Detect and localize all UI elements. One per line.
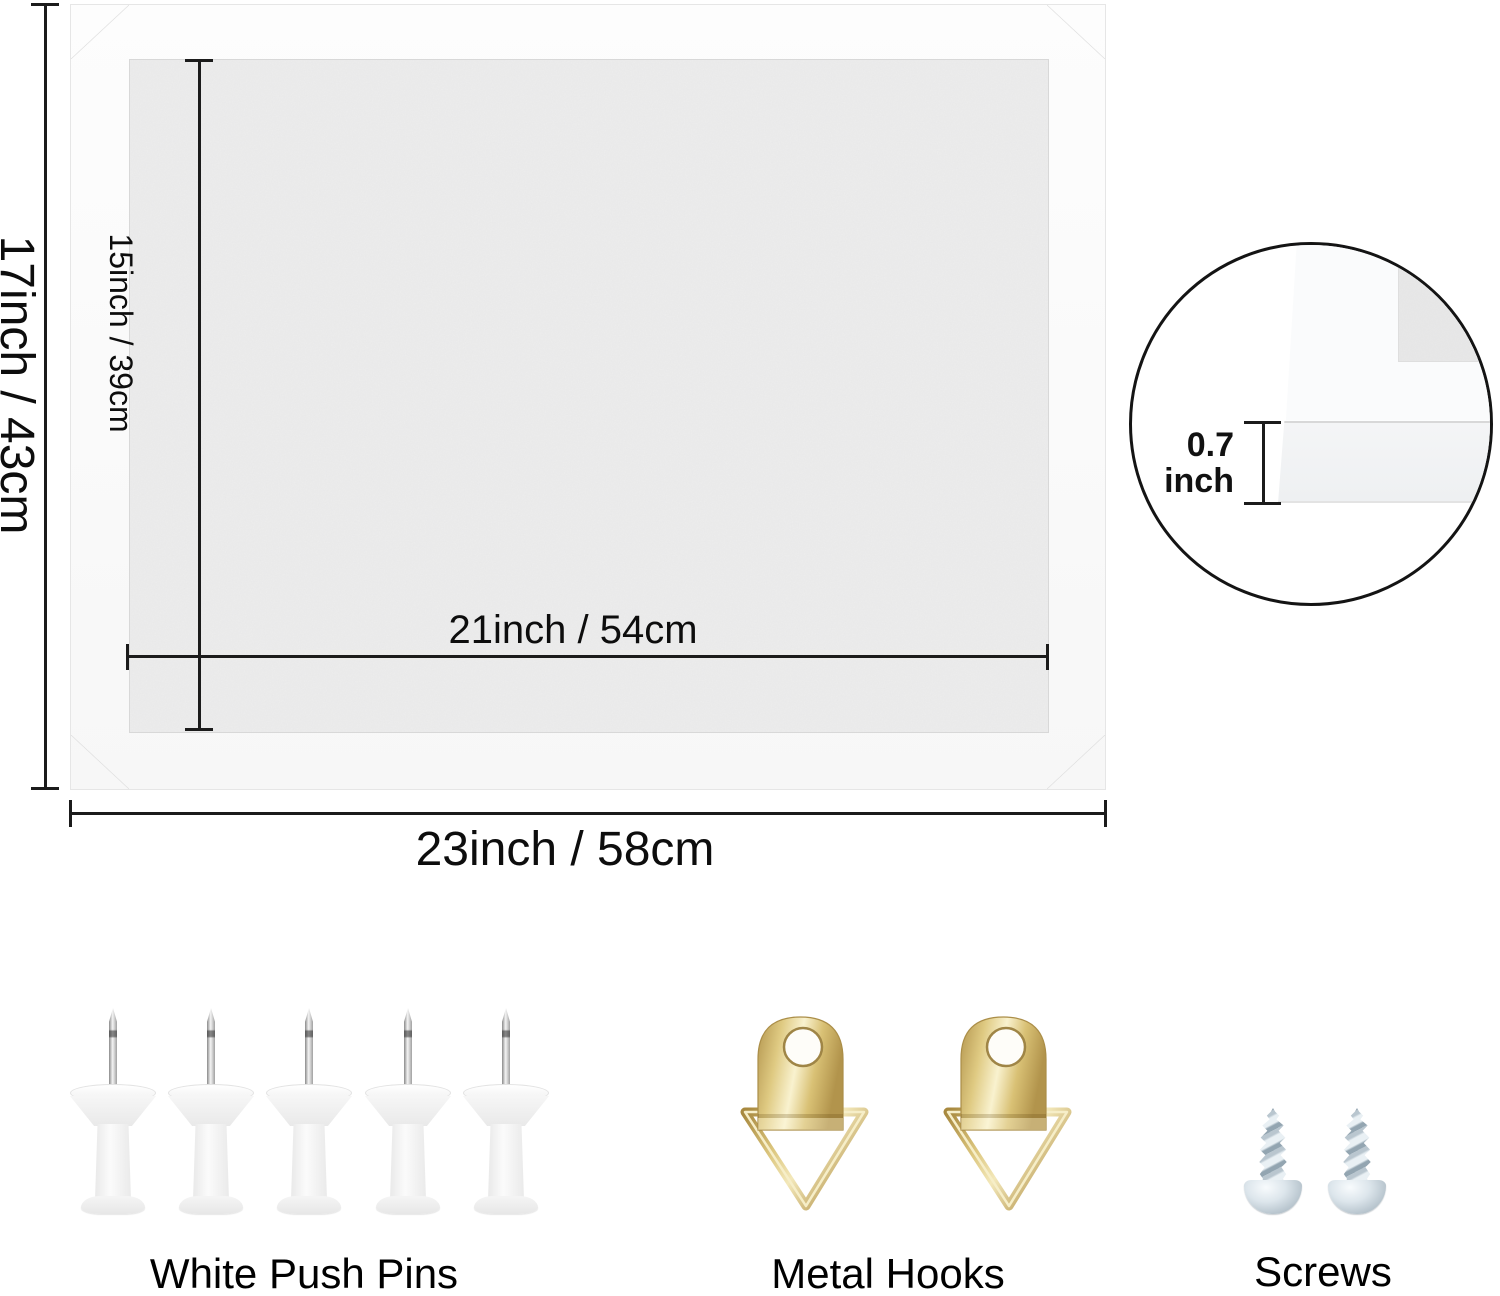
screw-head [1328,1180,1386,1214]
metal-hook [733,1012,873,1212]
outer-width-label: 23inch / 58cm [365,822,765,877]
detail-frame-edge [1278,421,1490,503]
thickness-value: 0.7 [1138,427,1234,463]
detail-felt-texture [1399,266,1492,361]
outer-width-left-tick [69,800,72,827]
pin-needle [502,1008,510,1094]
push-pin [363,1008,453,1214]
pin-base [474,1196,538,1214]
inner-height-label: 15inch / 39cm [103,203,139,463]
push-pins-label: White Push Pins [104,1250,504,1296]
pin-cup [168,1096,254,1126]
push-pin [166,1008,256,1214]
pin-stem [193,1124,229,1200]
inner-height-top-tick [185,59,213,62]
felt-board-frame [70,4,1106,790]
thickness-bottom-tick [1244,502,1281,505]
screw [1244,1108,1302,1214]
frame-thickness-detail-circle: 0.7 inch [1129,242,1493,606]
frame-miter-top-left [71,5,129,59]
outer-width-dimension-line [69,812,1107,815]
pin-needle [404,1008,412,1094]
screw-thread [1343,1108,1371,1184]
metal-hooks-label: Metal Hooks [688,1250,1088,1296]
product-dimension-diagram: 17inch / 43cm 15inch / 39cm 21inch / 54c… [0,0,1500,1296]
frame-miter-top-right [1047,5,1105,59]
pin-stem [291,1124,327,1200]
thickness-top-tick [1244,421,1281,424]
outer-width-right-tick [1104,800,1107,827]
thickness-dimension-line [1262,422,1265,505]
metal-hooks-group [733,1012,1078,1212]
push-pin [461,1008,551,1214]
inner-width-label: 21inch / 54cm [413,608,733,653]
screw-head [1244,1180,1302,1214]
pin-stem [488,1124,524,1200]
push-pin [264,1008,354,1214]
outer-height-dimension-line [44,3,47,790]
pin-needle [207,1008,215,1094]
outer-height-label: 17inch / 43cm [0,215,40,555]
pin-base [277,1196,341,1214]
inner-width-left-tick [126,644,129,670]
screws-group [1244,1108,1386,1214]
detail-felt-corner [1398,266,1492,362]
pin-needle [109,1008,117,1094]
metal-hook [936,1012,1076,1212]
pin-base [376,1196,440,1214]
inner-height-bottom-tick [185,728,213,731]
screw-thread [1259,1108,1287,1184]
frame-miter-bottom-right [1047,735,1105,789]
inner-height-dimension-line [198,59,201,731]
pin-needle [305,1008,313,1094]
pin-stem [95,1124,131,1200]
inner-width-dimension-line [126,655,1049,658]
inner-width-right-tick [1046,644,1049,670]
push-pins-group [62,1008,562,1214]
thickness-unit: inch [1138,463,1234,499]
screw [1328,1108,1386,1214]
pin-cup [266,1096,352,1126]
pin-cup [70,1096,156,1126]
thickness-label: 0.7 inch [1138,427,1234,499]
screws-label: Screws [1123,1248,1500,1296]
outer-height-bottom-tick [31,787,59,790]
pin-base [81,1196,145,1214]
pin-stem [390,1124,426,1200]
pin-cup [365,1096,451,1126]
outer-height-top-tick [31,3,59,6]
push-pin [68,1008,158,1214]
pin-base [179,1196,243,1214]
frame-miter-bottom-left [71,735,129,789]
pin-cup [463,1096,549,1126]
